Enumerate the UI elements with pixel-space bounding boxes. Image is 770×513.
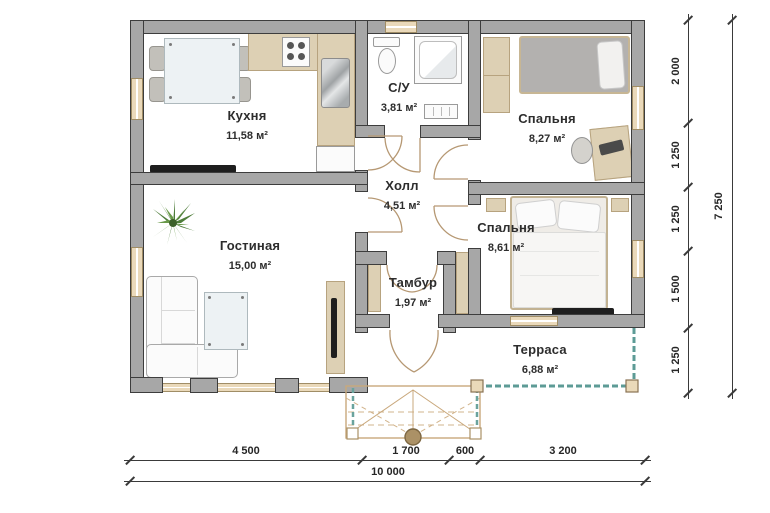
porch-deck xyxy=(346,386,481,445)
entrance-column xyxy=(405,429,421,445)
wall-segment xyxy=(130,20,144,393)
window xyxy=(131,247,143,297)
room-label-bathroom: С/У 3,81 м² xyxy=(381,80,417,114)
nightstand xyxy=(486,198,506,212)
wall-segment xyxy=(420,125,481,138)
room-label-terrace: Терраса 6,88 м² xyxy=(513,342,567,376)
dimension-line xyxy=(124,481,651,482)
wardrobe xyxy=(483,37,510,113)
dim-label-total: 10 000 xyxy=(371,466,405,478)
toilet xyxy=(373,37,400,47)
dimension-line xyxy=(124,460,651,461)
window xyxy=(131,78,143,120)
shower xyxy=(414,36,462,84)
dimension-line xyxy=(732,14,733,399)
dim-label: 600 xyxy=(456,445,474,457)
wall-segment xyxy=(130,172,368,185)
dim-label: 1 250 xyxy=(670,346,682,374)
wall-segment xyxy=(468,20,481,140)
fridge xyxy=(316,146,355,172)
dim-label-total: 7 250 xyxy=(713,192,725,220)
terrace-post xyxy=(626,380,638,392)
toilet-bowl xyxy=(378,48,396,74)
dining-table xyxy=(164,38,240,104)
wall-segment xyxy=(355,314,390,328)
coffee-table xyxy=(204,292,248,350)
tv xyxy=(331,298,337,358)
porch-post xyxy=(347,428,358,439)
wall-segment xyxy=(190,378,218,393)
terrace-post xyxy=(471,380,483,392)
kitchen-sink xyxy=(321,58,350,108)
room-label-hall: Холл 4,51 м² xyxy=(384,178,420,212)
room-label-bedroom-2: Спальня 8,61 м² xyxy=(477,220,535,254)
window xyxy=(632,86,644,130)
wall-segment xyxy=(130,377,163,393)
plant-icon xyxy=(149,199,197,247)
wall-segment xyxy=(468,182,645,195)
dim-label: 3 200 xyxy=(549,445,577,457)
room-label-kitchen: Кухня 11,58 м² xyxy=(226,108,268,142)
wall-segment xyxy=(355,125,385,138)
dim-label: 4 500 xyxy=(232,445,260,457)
stove xyxy=(282,37,310,67)
desk xyxy=(589,125,633,181)
wall-segment xyxy=(437,251,456,265)
porch-post xyxy=(470,428,481,439)
dim-label: 2 000 xyxy=(670,57,682,85)
dim-label: 1 500 xyxy=(670,275,682,303)
wall-segment xyxy=(631,20,645,328)
window xyxy=(510,316,558,326)
dim-label: 1 700 xyxy=(392,445,420,457)
dim-label: 1 250 xyxy=(670,141,682,169)
pillow xyxy=(557,200,602,233)
wall-segment xyxy=(275,378,299,393)
wall-segment xyxy=(355,251,387,265)
radiator xyxy=(424,104,458,119)
nightstand xyxy=(611,198,629,212)
room-label-living-room: Гостиная 15,00 м² xyxy=(220,238,280,272)
wall-segment xyxy=(329,377,368,393)
wall-segment xyxy=(355,20,368,133)
room-label-bedroom-1: Спальня 8,27 м² xyxy=(518,111,576,145)
dimension-line xyxy=(688,14,689,399)
window xyxy=(632,240,644,278)
room-label-vestibule: Тамбур 1,97 м² xyxy=(389,275,437,309)
dim-label: 1 250 xyxy=(670,205,682,233)
pillow xyxy=(596,40,625,90)
floor-plan-canvas: Кухня 11,58 м² С/У 3,81 м² Спальня 8,27 … xyxy=(0,0,770,513)
window xyxy=(385,21,417,33)
